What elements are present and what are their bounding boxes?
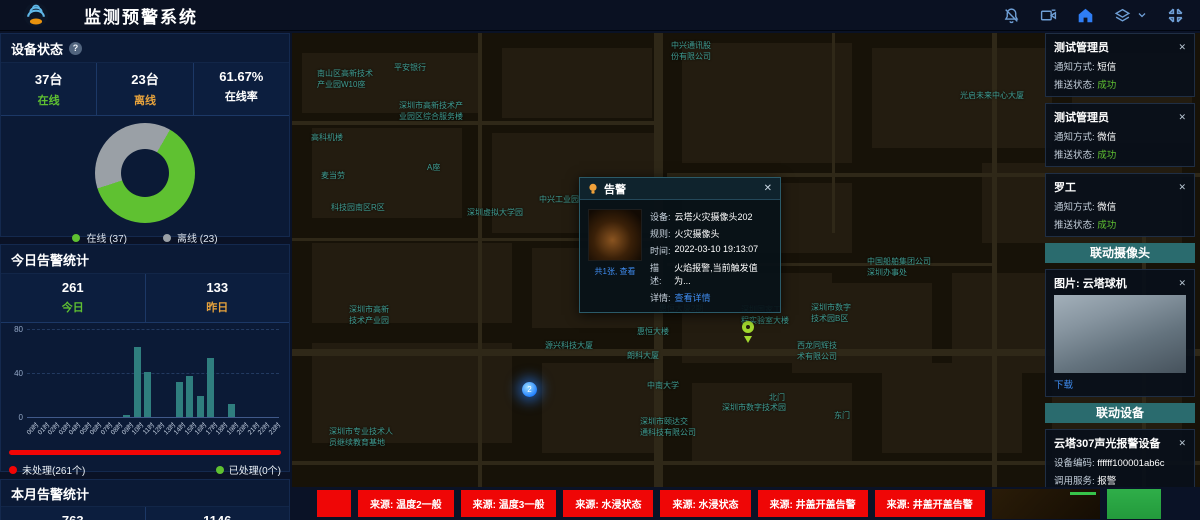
map-place-label: 深圳市颐达交 通科技有限公司 <box>640 417 696 439</box>
device-status-header: 设备状态 ? <box>1 34 289 63</box>
stat-cell: 37台在线 <box>1 63 97 115</box>
bar-series <box>27 329 279 417</box>
card-row-value: 报警 <box>1097 476 1116 487</box>
notification-card-head: 测试管理员✕ <box>1054 39 1186 55</box>
alarm-snapshot-wrap: 共1张, 查看 <box>588 209 642 304</box>
card-row-value: 短信 <box>1097 62 1116 73</box>
alert-thumbnail-green[interactable] <box>1107 489 1161 519</box>
legend-dot <box>163 234 171 242</box>
stat-cell: 1146 <box>146 507 290 520</box>
map-place-label: 朗科大厦 <box>627 351 659 362</box>
card-row: 调用服务: 报警 <box>1054 473 1186 487</box>
alert-source-tile[interactable]: 来源: 温度3一般 <box>461 490 557 517</box>
map-road <box>832 33 835 233</box>
legend-label: 离线 (23) <box>177 230 218 245</box>
month-stats: 7631146 <box>1 507 289 520</box>
stat-cell: 61.67%在线率 <box>194 63 289 115</box>
donut-wrap <box>1 116 289 225</box>
notification-card: 罗工✕通知方式: 微信推送状态: 成功 <box>1045 173 1195 237</box>
alert-thumbnail-dark[interactable] <box>992 489 1100 519</box>
linked-device-card-title: 云塔307声光报警设备 <box>1054 435 1160 451</box>
download-link[interactable]: 下载 <box>1054 377 1186 391</box>
today-alarms-title: 今日告警统计 <box>11 250 89 269</box>
linked-device-card: 云塔307声光报警设备✕设备编码: ffffff100001ab6c调用服务: … <box>1045 429 1195 487</box>
snapshot-view-link[interactable]: 共1张, 查看 <box>588 266 642 277</box>
progress-legend: 未处理(261个) 已处理(0个) <box>1 455 289 482</box>
detail-label: 规则: <box>650 227 671 240</box>
alarm-popup-body: 共1张, 查看 设备:云塔火灾摄像头202规则:火灾摄像头时间:2022-03-… <box>580 200 780 312</box>
bar-slot <box>174 382 185 417</box>
home-icon[interactable] <box>1077 7 1094 24</box>
monitoring-dashboard: 监测预警系统 设备状态 ? <box>0 0 1200 520</box>
map-place-label: 中兴工业园 <box>539 195 579 206</box>
hourly-bar-chart: 80400 00时01时02时03时04时05时06时07时08时09时10时1… <box>27 329 279 441</box>
bell-icon[interactable] <box>1003 7 1020 24</box>
alarm-detail-row: 规则:火灾摄像头 <box>650 227 772 240</box>
card-row: 通知方式: 微信 <box>1054 129 1186 143</box>
month-alarms-header: 本月告警统计 <box>1 480 289 507</box>
bulb-icon <box>588 183 598 195</box>
today-stats: 261今日133昨日 <box>1 274 289 323</box>
map-place-label: 平安银行 <box>394 63 426 74</box>
map-place-label: 科技园南区R区 <box>331 203 385 214</box>
map-place-label: 中国船舶集团公司 深圳办事处 <box>867 257 931 279</box>
bar <box>134 347 141 417</box>
top-header: 监测预警系统 <box>0 0 1200 31</box>
header-toolbar <box>1003 7 1200 24</box>
notification-card-head: 测试管理员✕ <box>1054 109 1186 125</box>
card-row: 推送状态: 成功 <box>1054 77 1186 91</box>
map-place-label: 深圳市专业技术人 员继续教育基地 <box>329 427 393 449</box>
card-row-label: 通知方式: <box>1054 202 1097 213</box>
legend-item: 离线 (23) <box>163 230 218 245</box>
map-road <box>478 33 482 487</box>
handled-label: 已处理(0个) <box>229 462 281 477</box>
info-icon[interactable]: ? <box>69 42 82 55</box>
linked-device-card-head: 云塔307声光报警设备✕ <box>1054 435 1186 451</box>
map-place-label: A座 <box>427 163 440 174</box>
stat-label: 今日 <box>1 299 145 315</box>
card-row: 通知方式: 短信 <box>1054 59 1186 73</box>
map-place-label: 光启未来中心大厦 <box>960 91 1024 102</box>
camera-section-header[interactable]: 联动摄像头 <box>1045 243 1195 263</box>
handled-legend-item: 已处理(0个) <box>216 462 281 477</box>
legend-dot <box>72 234 80 242</box>
alert-source-tile[interactable]: 来源: 水浸状态 <box>563 490 653 517</box>
fullscreen-icon[interactable] <box>1167 7 1184 24</box>
detail-value: 火灾摄像头 <box>675 227 720 240</box>
bar-slot <box>206 358 217 417</box>
card-row-label: 通知方式: <box>1054 132 1097 143</box>
left-sidebar: 设备状态 ? 37台在线23台离线61.67%在线率 在线 (37)离线 (23… <box>0 33 290 520</box>
bar-x-labels: 00时01时02时03时04时05时06时07时08时09时10时11时12时1… <box>27 419 279 439</box>
card-row-label: 设备编码: <box>1054 458 1097 469</box>
card-row-value: ffffff100001ab6c <box>1097 458 1164 469</box>
map-place-label: 西龙同辉技 术有限公司 <box>797 341 837 363</box>
bar-slot <box>122 415 133 417</box>
map-place-label: 惠恒大楼 <box>637 327 669 338</box>
map-place-label: 深圳市高新 技术产业园 <box>349 305 389 327</box>
x-label-slot: 23时 <box>269 419 280 439</box>
alarm-detail-row: 描述:火焰报警,当前触发值为... <box>650 261 772 287</box>
map-place-label: 深圳市数字技术园 <box>722 403 786 414</box>
page-title: 监测预警系统 <box>84 3 198 28</box>
card-row-label: 通知方式: <box>1054 62 1097 73</box>
camera-card-title: 图片: 云塔球机 <box>1054 275 1127 291</box>
close-icon[interactable]: ✕ <box>1178 182 1186 193</box>
alert-source-tile[interactable]: 来源: 水浸状态 <box>660 490 750 517</box>
stat-cell: 261今日 <box>1 274 146 322</box>
stat-value: 261 <box>1 280 145 295</box>
card-row: 推送状态: 成功 <box>1054 147 1186 161</box>
detail-label: 详情: <box>650 291 671 304</box>
map-place-label: 中兴通讯股 份有限公司 <box>671 41 711 63</box>
device-section-header[interactable]: 联动设备 <box>1045 403 1195 423</box>
month-alarms-panel: 本月告警统计 7631146 <box>0 479 290 520</box>
detail-value: 火焰报警,当前触发值为... <box>674 261 772 287</box>
camera-photo-image[interactable] <box>1054 295 1186 373</box>
y-tick-label: 0 <box>7 413 23 422</box>
bar <box>123 415 130 417</box>
notification-card-title: 罗工 <box>1054 179 1076 195</box>
alarm-detail-row: 设备:云塔火灾摄像头202 <box>650 210 772 223</box>
stat-label: 离线 <box>97 92 192 108</box>
detail-label: 描述: <box>650 261 670 287</box>
map-place-label: 源兴科技大厦 <box>545 341 593 352</box>
close-icon[interactable]: ✕ <box>1178 42 1186 53</box>
map-place-label: 深圳市高新技术产 业园区综合服务楼 <box>399 101 463 123</box>
unhandled-legend-item: 未处理(261个) <box>9 462 85 477</box>
camera-card-head: 图片: 云塔球机 ✕ <box>1054 275 1186 291</box>
map-place-label: 深圳虚拟大学园 <box>467 208 523 219</box>
stat-cell: 133昨日 <box>146 274 290 322</box>
legend-label: 在线 (37) <box>86 230 127 245</box>
card-row-label: 推送状态: <box>1054 220 1097 231</box>
alarm-location-pin[interactable] <box>742 321 754 333</box>
detail-label: 设备: <box>650 210 671 223</box>
stat-value: 1146 <box>146 513 290 520</box>
map-place-label: 麦当劳 <box>321 171 345 182</box>
stat-label: 在线率 <box>194 88 289 104</box>
close-icon[interactable]: ✕ <box>1178 278 1186 289</box>
right-sidebar: 测试管理员✕通知方式: 短信推送状态: 成功测试管理员✕通知方式: 微信推送状态… <box>1045 33 1195 487</box>
bar <box>207 358 214 417</box>
close-icon[interactable]: ✕ <box>1178 438 1186 449</box>
alert-source-tile[interactable]: 来源: 温度2一般 <box>358 490 454 517</box>
alarm-detail-rows: 设备:云塔火灾摄像头202规则:火灾摄像头时间:2022-03-10 19:13… <box>650 209 772 304</box>
legend-item: 在线 (37) <box>72 230 127 245</box>
stat-value: 763 <box>1 513 145 520</box>
x-tick-label: 23时 <box>265 420 282 437</box>
layers-icon[interactable] <box>1114 7 1131 24</box>
stat-cell: 23台离线 <box>97 63 193 115</box>
notification-card-title: 测试管理员 <box>1054 39 1109 55</box>
card-row-label: 推送状态: <box>1054 150 1097 161</box>
bottom-alert-bar: 来源: 温度2一般来源: 温度3一般来源: 水浸状态来源: 水浸状态来源: 井盖… <box>292 487 1200 520</box>
today-alarms-header: 今日告警统计 <box>1 245 289 274</box>
card-row: 通知方式: 微信 <box>1054 199 1186 213</box>
stat-value: 37台 <box>1 69 96 88</box>
y-tick-label: 80 <box>7 325 23 334</box>
handled-dot <box>216 466 224 474</box>
video-camera-icon[interactable] <box>1040 7 1057 24</box>
bar <box>144 372 151 417</box>
bar-slot <box>227 404 238 417</box>
bar-slot <box>132 347 143 417</box>
card-row-label: 调用服务: <box>1054 476 1097 487</box>
device-status-title: 设备状态 <box>11 39 63 58</box>
bar <box>197 396 204 417</box>
app-logo-icon <box>22 2 50 28</box>
bar <box>176 382 183 417</box>
map-place-label: 高科机楼 <box>311 133 343 144</box>
map-building-block <box>312 243 512 323</box>
map-road <box>292 121 662 125</box>
detail-label: 时间: <box>650 244 671 257</box>
alarm-popup-titlebar: 告警 ✕ <box>580 178 780 200</box>
alarm-popup: 告警 ✕ 共1张, 查看 设备:云塔火灾摄像头202规则:火灾摄像头时间:202… <box>579 177 781 313</box>
map-place-label: 中南大学 <box>647 381 679 392</box>
stat-cell: 763 <box>1 507 146 520</box>
notification-card: 测试管理员✕通知方式: 短信推送状态: 成功 <box>1045 33 1195 97</box>
stat-value: 61.67% <box>194 69 289 84</box>
map-building-block <box>882 363 1022 453</box>
y-tick-label: 40 <box>7 369 23 378</box>
card-row-value: 微信 <box>1097 202 1116 213</box>
alarm-snapshot-image[interactable] <box>588 209 642 261</box>
card-row-value: 成功 <box>1097 80 1116 91</box>
alarm-popup-title: 告警 <box>604 181 626 197</box>
camera-card: 图片: 云塔球机 ✕ 下载 <box>1045 269 1195 397</box>
map-place-label: 东门 <box>834 411 850 422</box>
donut-hole <box>121 149 169 197</box>
bar <box>228 404 235 417</box>
stat-label: 昨日 <box>146 299 290 315</box>
stat-value: 133 <box>146 280 290 295</box>
device-status-panel: 设备状态 ? 37台在线23台离线61.67%在线率 在线 (37)离线 (23… <box>0 33 290 237</box>
alert-tile-blank[interactable] <box>317 490 351 517</box>
detail-value: 2022-03-10 19:13:07 <box>675 244 759 257</box>
cluster-marker[interactable]: 2 <box>522 382 537 397</box>
alert-source-tile[interactable]: 来源: 井盖开盖告警 <box>875 490 985 517</box>
today-alarms-panel: 今日告警统计 261今日133昨日 80400 00时01时02时03时04时0… <box>0 244 290 472</box>
alarm-detail-row: 详情:查看详情 <box>650 291 772 304</box>
card-row-label: 推送状态: <box>1054 80 1097 91</box>
bar-slot <box>185 376 196 417</box>
card-row-value: 成功 <box>1097 220 1116 231</box>
alert-source-tile[interactable]: 来源: 井盖开盖告警 <box>758 490 868 517</box>
view-details-link[interactable]: 查看详情 <box>675 291 711 304</box>
card-row-value: 微信 <box>1097 132 1116 143</box>
map-building-block <box>502 48 652 118</box>
stat-value: 23台 <box>97 69 192 88</box>
map-place-label: 深圳市数字 技术园B区 <box>811 303 851 325</box>
bar-slot <box>143 372 154 417</box>
detail-value: 云塔火灾摄像头202 <box>675 210 753 223</box>
notification-card: 测试管理员✕通知方式: 微信推送状态: 成功 <box>1045 103 1195 167</box>
close-icon[interactable]: ✕ <box>764 183 772 194</box>
map-place-label: 南山区高新技术 产业园W10座 <box>317 69 373 91</box>
unhandled-dot <box>9 466 17 474</box>
bar-slot <box>195 396 206 417</box>
close-icon[interactable]: ✕ <box>1178 112 1186 123</box>
device-status-donut-chart <box>95 123 195 223</box>
notification-card-title: 测试管理员 <box>1054 109 1109 125</box>
notification-card-head: 罗工✕ <box>1054 179 1186 195</box>
grid-line <box>27 417 279 418</box>
card-row-value: 成功 <box>1097 150 1116 161</box>
stat-label: 在线 <box>1 92 96 108</box>
bar <box>186 376 193 417</box>
card-row: 推送状态: 成功 <box>1054 217 1186 231</box>
device-stats: 37台在线23台离线61.67%在线率 <box>1 63 289 116</box>
card-row: 设备编码: ffffff100001ab6c <box>1054 455 1186 469</box>
month-alarms-title: 本月告警统计 <box>11 484 89 503</box>
chevron-down-icon[interactable] <box>1137 10 1147 20</box>
alarm-detail-row: 时间:2022-03-10 19:13:07 <box>650 244 772 257</box>
unhandled-label: 未处理(261个) <box>22 462 85 477</box>
map-building-block <box>542 363 662 453</box>
